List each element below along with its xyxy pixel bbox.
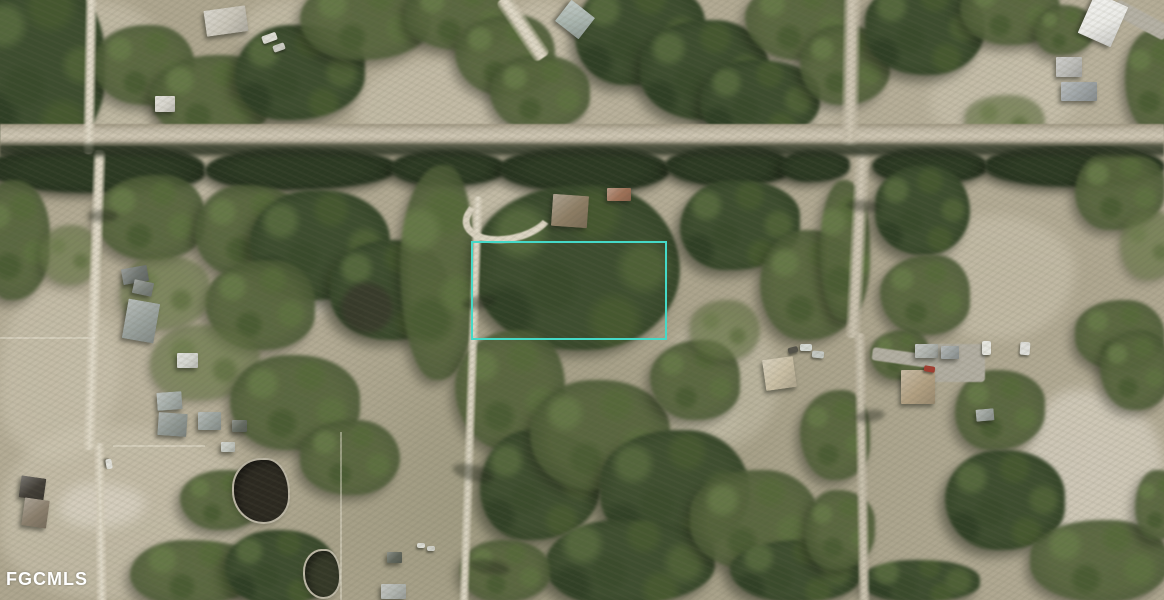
building-roof [915, 344, 938, 358]
pond [303, 549, 341, 599]
building-roof [232, 420, 247, 432]
tree-patch [860, 560, 980, 600]
tree-patch [955, 370, 1045, 450]
building-roof [607, 188, 631, 201]
property-boundary [471, 241, 667, 340]
building-roof [177, 353, 198, 368]
fence-line [340, 432, 342, 600]
aerial-photo: FGCMLS [0, 0, 1164, 600]
building-roof [198, 412, 221, 430]
vehicle [1020, 342, 1031, 356]
vehicle [982, 341, 991, 355]
building-roof [387, 552, 402, 563]
vehicle [417, 543, 425, 548]
tree-patch [1120, 210, 1164, 280]
building-roof [1061, 82, 1097, 101]
building-roof [21, 497, 50, 528]
tree-patch [1100, 330, 1164, 410]
building-roof [901, 370, 935, 404]
building-roof [381, 584, 406, 599]
fence-line [113, 445, 205, 447]
vehicle [812, 350, 825, 358]
watermark-text: FGCMLS [6, 570, 88, 588]
building-roof [157, 412, 188, 437]
tree-patch [545, 520, 715, 600]
vehicle [787, 346, 798, 354]
building-roof [976, 408, 995, 422]
tree-patch [875, 165, 970, 255]
tree-patch [880, 255, 970, 335]
vehicle [800, 344, 812, 351]
building-roof [1056, 57, 1082, 77]
pond [232, 458, 290, 524]
dirt-road [841, 0, 862, 146]
tree-patch [300, 420, 400, 495]
building-roof [156, 391, 182, 411]
building-roof [122, 299, 160, 344]
building-roof [941, 346, 959, 359]
tree-shadow [88, 210, 118, 222]
building-roof [551, 194, 589, 228]
building-roof [155, 96, 175, 112]
fence-line [0, 337, 95, 339]
tree-patch [400, 165, 475, 380]
tree-patch [490, 55, 590, 130]
vehicle [427, 546, 435, 551]
building-roof [19, 475, 47, 500]
building-roof [221, 442, 235, 452]
roadside-canal [0, 141, 1164, 159]
pond [341, 283, 393, 333]
building-roof [762, 356, 797, 391]
tree-patch [1125, 30, 1164, 130]
tree-patch [690, 300, 760, 360]
